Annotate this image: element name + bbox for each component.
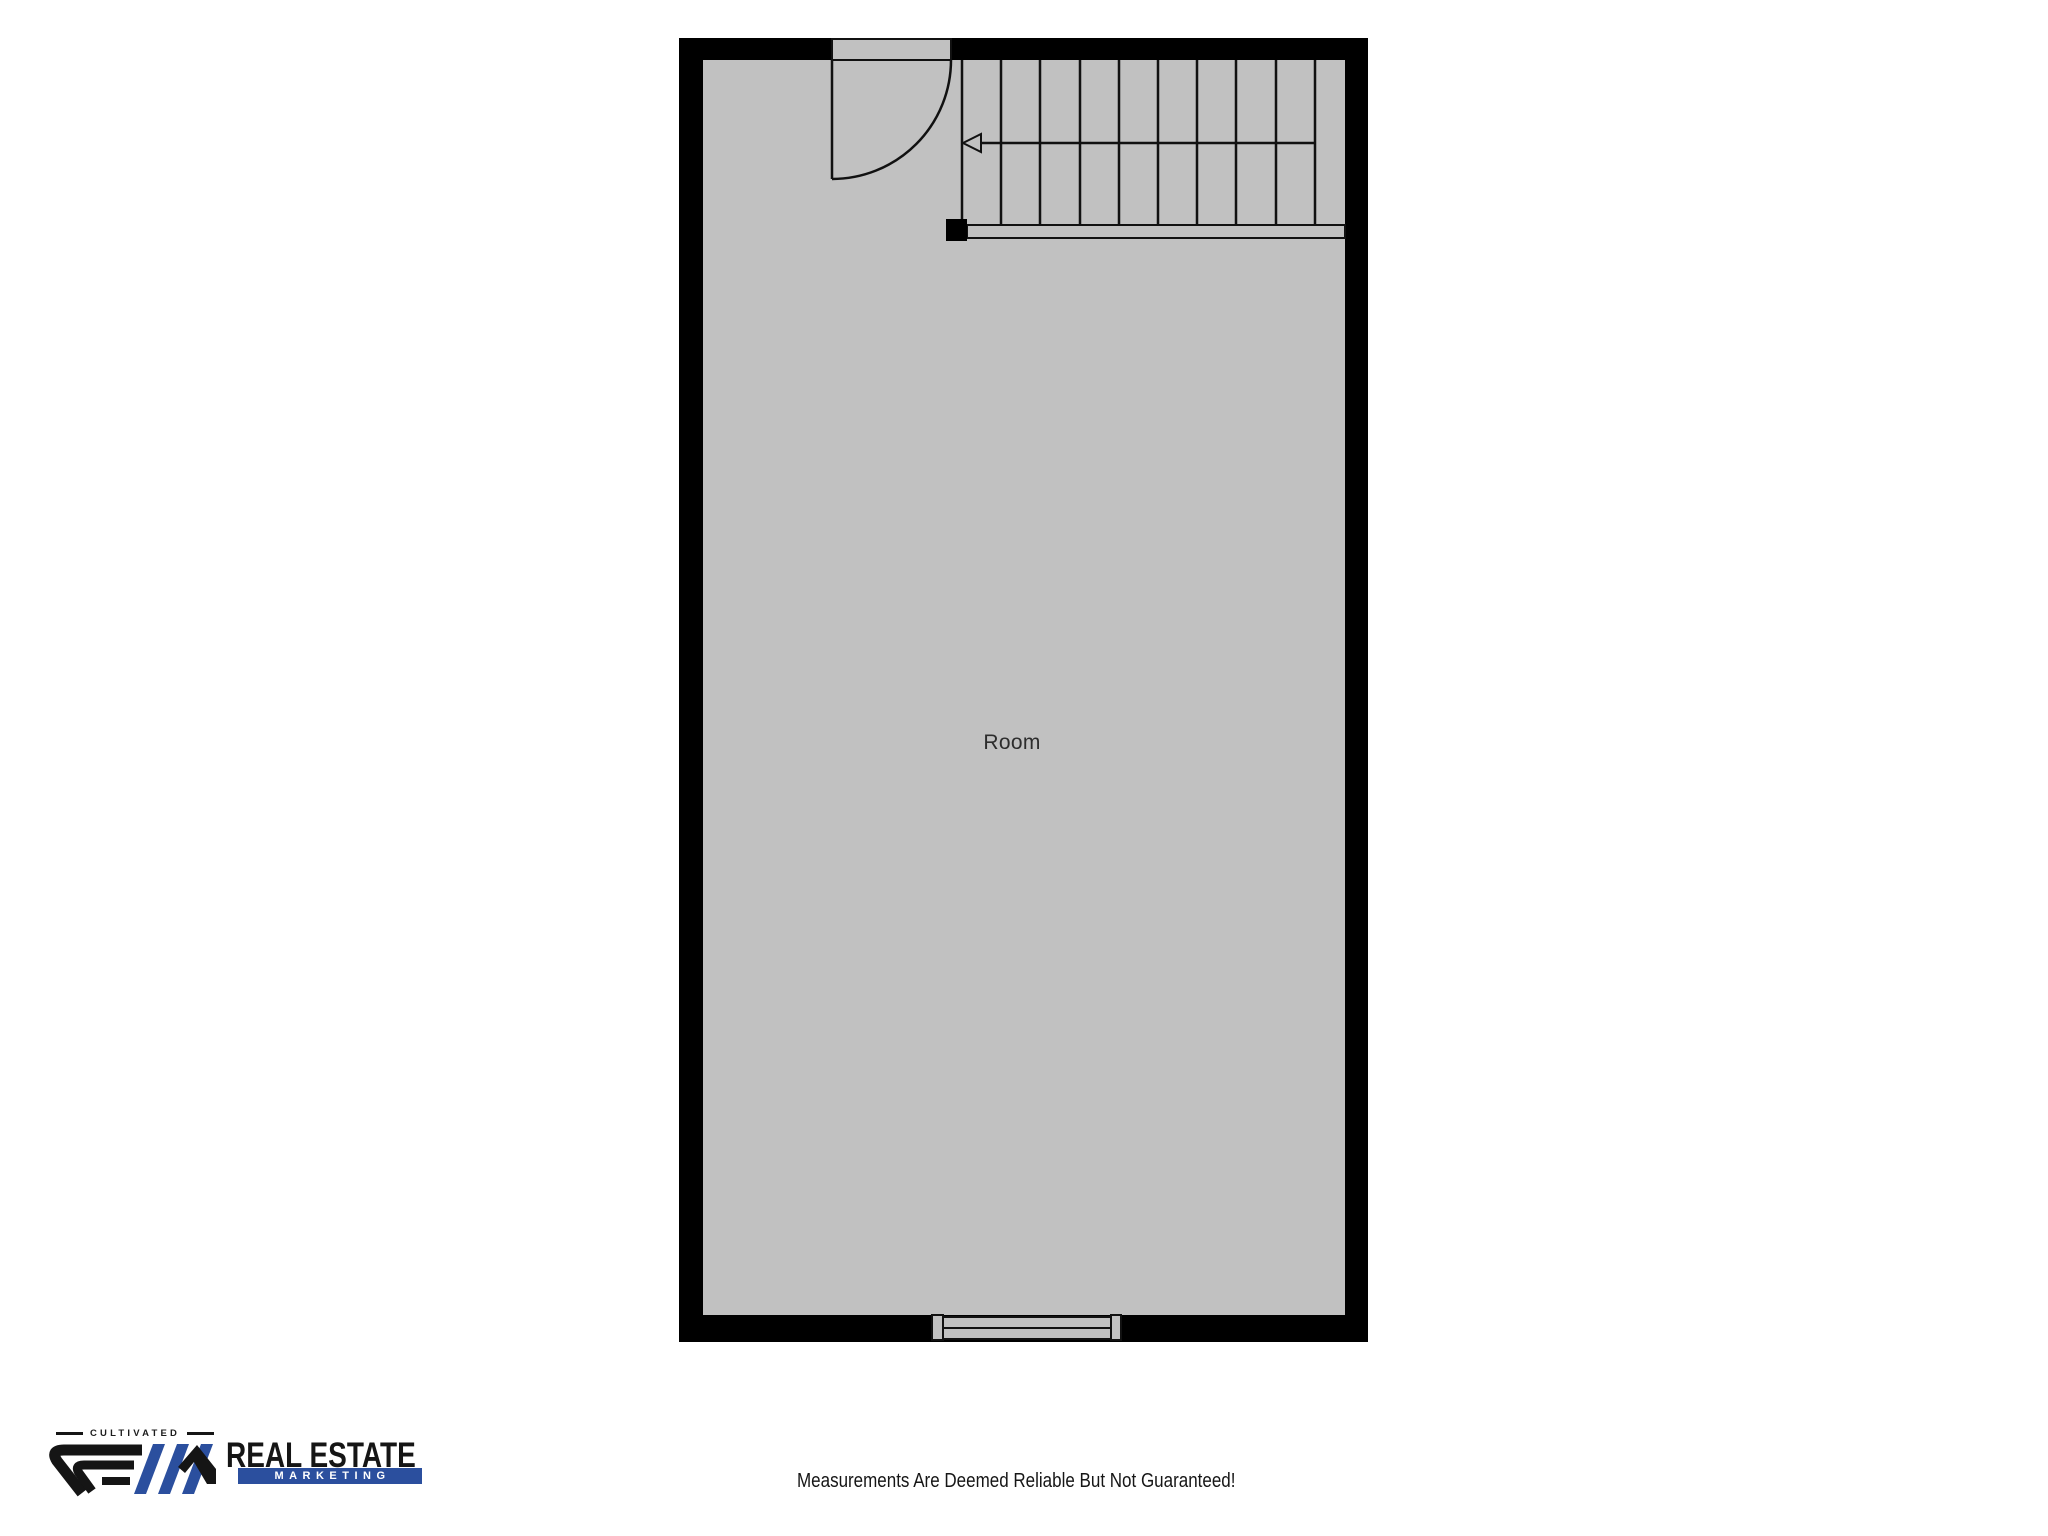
tagline-left-dash (56, 1432, 83, 1435)
tagline-right-dash (187, 1432, 214, 1435)
logo-tagline-row: CULTIVATED (56, 1428, 214, 1439)
stair-newel-post (946, 219, 967, 241)
room-floor (703, 60, 1345, 1315)
window-left-jamb (932, 1315, 943, 1340)
floor-plan-page: Room CULTIVATED REAL ESTATE MARKETING Me… (0, 0, 2048, 1536)
room-label: Room (983, 731, 1040, 755)
real-estate-marketing-logo-icon (44, 1441, 216, 1497)
stair-railing (967, 225, 1345, 238)
logo-marketing-bar: MARKETING (238, 1468, 422, 1484)
tagline-text: CULTIVATED (90, 1428, 180, 1439)
disclaimer-text: Measurements Are Deemed Reliable But Not… (797, 1470, 1235, 1493)
door-opening (832, 39, 951, 60)
floor-plan (679, 38, 1368, 1342)
window (932, 1315, 1121, 1340)
window-right-jamb (1111, 1315, 1121, 1340)
re-monogram (55, 1450, 142, 1493)
